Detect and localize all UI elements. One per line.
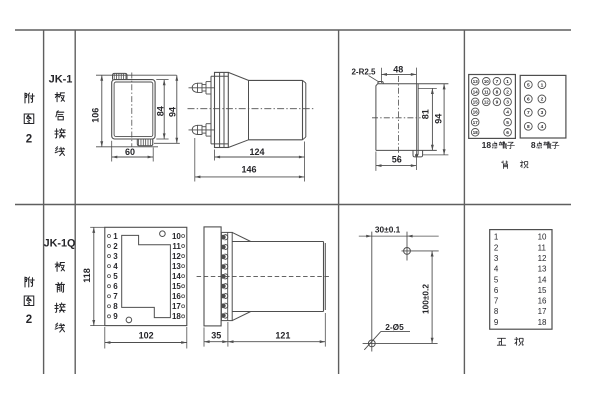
svg-text:7: 7	[527, 110, 530, 116]
svg-text:3: 3	[541, 110, 544, 116]
svg-text:11: 11	[172, 242, 181, 251]
svg-text:14: 14	[172, 272, 181, 281]
svg-text:48: 48	[393, 64, 403, 74]
svg-text:5: 5	[506, 120, 509, 126]
svg-text:13: 13	[538, 265, 547, 274]
svg-text:106: 106	[90, 108, 100, 123]
svg-text:3: 3	[113, 252, 118, 261]
svg-text:JK-1: JK-1	[49, 74, 73, 86]
svg-text:4: 4	[494, 265, 499, 274]
svg-text:8: 8	[531, 140, 536, 150]
svg-text:81: 81	[421, 109, 431, 119]
svg-text:JK-1Q: JK-1Q	[44, 238, 76, 250]
svg-text:7: 7	[496, 79, 499, 85]
svg-text:5: 5	[113, 272, 118, 281]
svg-text:35: 35	[211, 330, 221, 340]
svg-text:4: 4	[113, 262, 118, 271]
svg-text:2: 2	[113, 242, 118, 251]
svg-text:2: 2	[541, 97, 544, 103]
svg-text:17: 17	[538, 307, 547, 316]
svg-text:6: 6	[494, 286, 499, 295]
svg-text:3: 3	[494, 254, 499, 263]
svg-text:11: 11	[538, 243, 547, 252]
svg-text:7: 7	[113, 292, 118, 301]
svg-text:12: 12	[484, 100, 489, 105]
svg-text:14: 14	[538, 275, 547, 284]
svg-text:2: 2	[494, 243, 499, 252]
svg-text:2-R2.5: 2-R2.5	[351, 67, 376, 76]
svg-text:10: 10	[172, 232, 181, 241]
svg-text:2: 2	[26, 314, 32, 326]
svg-text:15: 15	[538, 286, 547, 295]
svg-text:10: 10	[484, 79, 489, 84]
svg-text:18: 18	[538, 318, 547, 327]
svg-text:30±0.1: 30±0.1	[375, 225, 401, 235]
svg-text:2-Ø5: 2-Ø5	[385, 322, 404, 332]
svg-text:5: 5	[527, 83, 530, 89]
svg-text:7: 7	[494, 297, 499, 306]
svg-text:1: 1	[113, 232, 118, 241]
svg-text:16: 16	[172, 292, 181, 301]
svg-text:100±0.2: 100±0.2	[420, 284, 430, 314]
svg-text:12: 12	[538, 254, 547, 263]
svg-text:84: 84	[156, 106, 166, 116]
svg-text:15: 15	[172, 282, 181, 291]
svg-text:10: 10	[538, 233, 547, 242]
svg-text:18: 18	[172, 312, 181, 321]
svg-text:6: 6	[113, 282, 118, 291]
svg-text:146: 146	[241, 164, 256, 174]
svg-text:18: 18	[473, 130, 478, 135]
svg-text:8: 8	[527, 124, 530, 130]
svg-text:4: 4	[541, 124, 544, 130]
svg-text:15: 15	[473, 100, 478, 105]
svg-text:2: 2	[26, 134, 32, 146]
svg-text:5: 5	[494, 275, 499, 284]
svg-text:16: 16	[538, 297, 547, 306]
svg-text:14: 14	[473, 89, 478, 94]
svg-text:94: 94	[433, 114, 443, 124]
svg-text:56: 56	[392, 154, 402, 164]
svg-text:9: 9	[494, 318, 499, 327]
svg-text:9: 9	[113, 312, 118, 321]
svg-text:94: 94	[168, 107, 178, 117]
svg-text:118: 118	[82, 268, 92, 283]
svg-text:8: 8	[496, 89, 499, 95]
svg-text:6: 6	[506, 130, 509, 136]
svg-text:16: 16	[473, 110, 478, 115]
svg-text:4: 4	[506, 110, 509, 116]
svg-text:1: 1	[541, 83, 544, 89]
svg-text:17: 17	[473, 120, 478, 125]
svg-text:11: 11	[484, 89, 489, 94]
svg-text:6: 6	[527, 97, 530, 103]
svg-text:3: 3	[506, 100, 509, 106]
svg-text:1: 1	[506, 79, 509, 85]
svg-text:13: 13	[473, 79, 478, 84]
svg-text:1: 1	[494, 233, 499, 242]
svg-text:8: 8	[113, 302, 118, 311]
svg-text:13: 13	[172, 262, 181, 271]
svg-text:9: 9	[496, 100, 499, 106]
svg-text:18: 18	[482, 140, 492, 150]
svg-text:60: 60	[125, 147, 135, 157]
svg-text:121: 121	[275, 330, 290, 340]
svg-text:17: 17	[172, 302, 181, 311]
svg-text:2: 2	[506, 89, 509, 95]
svg-text:8: 8	[494, 307, 499, 316]
svg-text:102: 102	[139, 331, 154, 341]
svg-text:12: 12	[172, 252, 181, 261]
svg-text:124: 124	[249, 147, 264, 157]
